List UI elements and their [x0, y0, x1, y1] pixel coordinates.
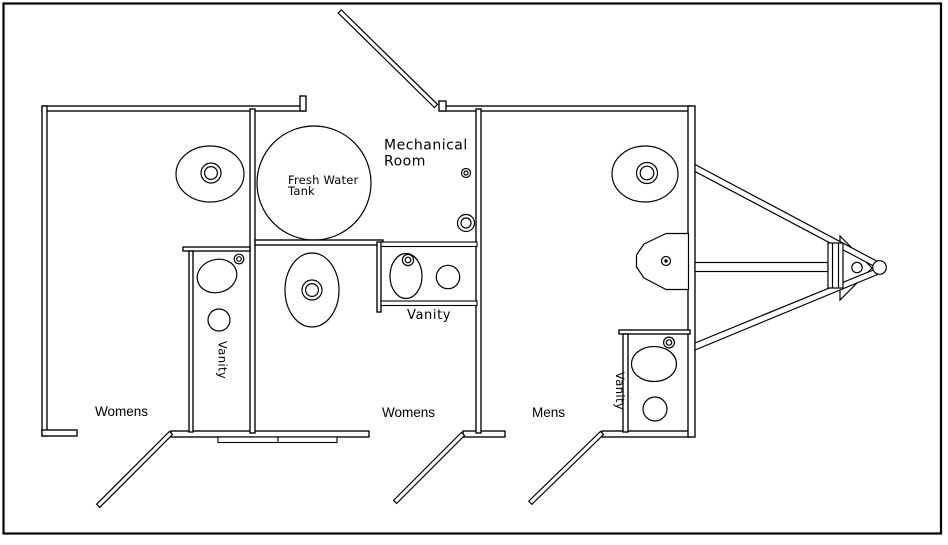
- wall-vanity-center-stub: [377, 242, 381, 312]
- floor-plan-drawing: Mechanical Room Fresh Water Tank Vanity …: [0, 0, 948, 545]
- womens-left-door-leaf: [97, 431, 173, 507]
- room-label-womens-left: Womens: [95, 404, 148, 419]
- floor-plan-canvas: Mechanical Room Fresh Water Tank Vanity …: [0, 0, 948, 545]
- womens-center-door-leaf: [394, 432, 465, 503]
- mechanical-room-label-line1: Mechanical: [384, 138, 468, 154]
- tongue-bar-upper: [695, 165, 878, 267]
- vanity-hole-icon: [436, 265, 459, 288]
- door-jamb-top: [300, 96, 306, 111]
- exterior-walls: [42, 96, 695, 437]
- wall-top-left: [42, 106, 305, 111]
- mens-door-leaf: [529, 431, 604, 504]
- coupler-plate: [828, 243, 843, 288]
- sink-icon-womens-center: [390, 254, 460, 299]
- toilet-icon-womens-left: [176, 146, 244, 202]
- tongue-bar-lower: [695, 270, 878, 351]
- sink-icon-womens-left: [193, 254, 243, 331]
- hitch-coupler-icon: [873, 261, 887, 275]
- safety-pin-icon: [852, 262, 862, 272]
- entry-steps: [218, 437, 337, 443]
- mechanical-room-door-leaf: [338, 10, 437, 108]
- floor-drain-icons: [458, 169, 475, 232]
- fresh-water-tank-label-line2: Tank: [287, 184, 315, 198]
- wall-bottom-womens: [171, 431, 369, 437]
- toilet-icon-mens: [612, 146, 678, 202]
- vanity-label-center: Vanity: [407, 308, 451, 323]
- vanity-hole-icon: [643, 397, 667, 421]
- wall-tank-room-bottom: [255, 240, 383, 245]
- wall-bottom-stub-left: [42, 430, 77, 436]
- vanity-label-mens: Vanity: [613, 372, 627, 410]
- room-label-womens-center: Womens: [382, 405, 435, 420]
- vanity-label-womens-left: Vanity: [216, 341, 230, 379]
- wall-divider-womens-mech: [250, 109, 255, 433]
- vanity-counters: [381, 242, 477, 306]
- wall-vanity-left-side: [189, 251, 193, 432]
- mechanical-room-label-line2: Room: [384, 154, 426, 170]
- sink-icon-mens: [632, 337, 677, 421]
- trailer-tongue: [695, 165, 886, 351]
- wall-divider-mech-mens: [476, 109, 481, 433]
- vanity-center-counter-top: [381, 242, 477, 247]
- wall-bottom-center-stub: [463, 431, 505, 437]
- vanity-hole-icon: [208, 309, 230, 331]
- door-jamb-top-right: [439, 101, 446, 111]
- wall-left: [42, 106, 47, 436]
- room-label-mens: Mens: [532, 405, 565, 420]
- entry-step: [218, 437, 278, 443]
- toilet-icon-womens-center: [285, 253, 339, 327]
- entry-step: [278, 437, 337, 443]
- tongue-jack-bar: [695, 263, 828, 272]
- wall-bottom-mens: [602, 431, 691, 437]
- urinal-icon: [637, 234, 689, 290]
- labels: Mechanical Room Fresh Water Tank Vanity …: [95, 138, 627, 421]
- vanity-center-counter-bottom: [381, 301, 477, 306]
- wall-vanity-mens-top: [619, 330, 690, 334]
